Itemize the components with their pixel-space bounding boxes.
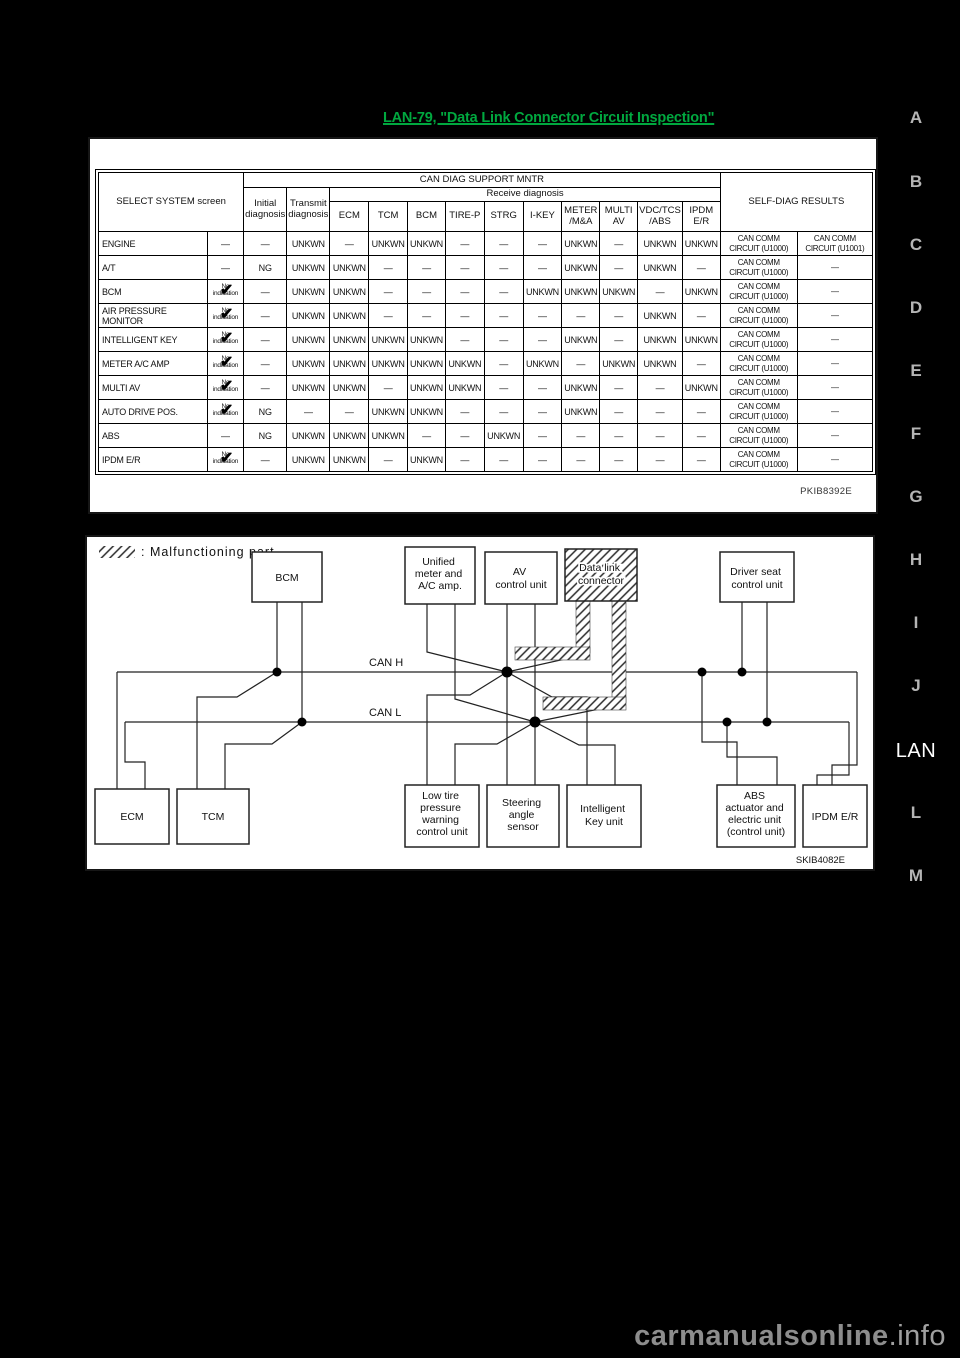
side-tab-c: C [894, 235, 938, 255]
cell-value: UNKWN [369, 400, 408, 424]
cell-value: — [682, 352, 720, 376]
table-row: AUTO DRIVE POS.Noindication✔NG——UNKWNUNK… [99, 400, 873, 424]
wire-lowtire-l [455, 722, 535, 785]
cell-value: — [523, 424, 562, 448]
cell-value: — [562, 352, 600, 376]
cell-self-diag-2: — [797, 400, 872, 424]
cell-self-diag-1: CAN COMM CIRCUIT (U1000) [720, 376, 797, 400]
cell-value: — [638, 280, 683, 304]
diag-table-frame: SELECT SYSTEM screen CAN DIAG SUPPORT MN… [95, 169, 876, 475]
wire-tcm-l [225, 722, 302, 789]
cell-value: — [638, 376, 683, 400]
header-initial: Initial diagnosis [244, 188, 287, 232]
cell-value: — [682, 448, 720, 472]
cell-value: — [484, 328, 523, 352]
cell-value: UNKWN [562, 400, 600, 424]
cell-value: UNKWN [523, 352, 562, 376]
cell-self-diag-1: CAN COMM CIRCUIT (U1000) [720, 280, 797, 304]
cell-value: — [484, 352, 523, 376]
watermark-suffix: .info [889, 1320, 946, 1352]
header-unit-ipdm: IPDM E/R [682, 202, 720, 232]
cell-value: — [244, 328, 287, 352]
side-tab-d: D [894, 298, 938, 318]
cell-system-name: METER A/C AMP [99, 352, 208, 376]
side-tab-i: I [894, 613, 938, 633]
wire-intkey-l [535, 722, 615, 785]
malfunctioning-legend: : Malfunctioning part [99, 545, 275, 559]
side-tab-j: J [894, 676, 938, 696]
cell-value: UNKWN [287, 304, 330, 328]
wire-dlc-h [507, 601, 583, 672]
cell-value: UNKWN [638, 304, 683, 328]
side-tab-b: B [894, 172, 938, 192]
cell-value: — [408, 304, 446, 328]
cell-value: UNKWN [287, 376, 330, 400]
cell-value: — [484, 280, 523, 304]
cell-value: — [523, 256, 562, 280]
cell-value: — [523, 400, 562, 424]
cell-value: UNKWN [408, 352, 446, 376]
junction-dot [723, 718, 732, 727]
box-dlc-label: Data link connector [578, 562, 625, 587]
box-tcm-label: TCM [202, 811, 225, 823]
cell-value: — [330, 232, 369, 256]
side-tab-f: F [894, 424, 938, 444]
cell-value: UNKWN [638, 328, 683, 352]
hatch-run-dlc-l-horiz [543, 697, 626, 710]
cell-value: — [600, 328, 638, 352]
cell-system-name: INTELLIGENT KEY [99, 328, 208, 352]
cell-value: UNKWN [682, 376, 720, 400]
junction-dot [763, 718, 772, 727]
cell-self-diag-1: CAN COMM CIRCUIT (U1000) [720, 424, 797, 448]
cell-value: UNKWN [369, 424, 408, 448]
cell-value: — [682, 424, 720, 448]
cell-value: UNKWN [330, 304, 369, 328]
manual-page: { "page": { "link_text": "LAN-79, \"Data… [0, 0, 960, 1358]
cell-value: — [600, 232, 638, 256]
side-tab-a: A [894, 108, 938, 128]
cell-value: — [244, 280, 287, 304]
header-unit-tcm: TCM [369, 202, 408, 232]
cell-value: — [445, 448, 484, 472]
diagram-figure-code: SKIB4082E [796, 855, 845, 866]
header-unit-bcm: BCM [408, 202, 446, 232]
cell-value: UNKWN [330, 256, 369, 280]
cell-value: — [523, 304, 562, 328]
cell-value: — [682, 304, 720, 328]
cell-value: — [369, 256, 408, 280]
cell-value: — [600, 376, 638, 400]
cell-value: — [484, 376, 523, 400]
cell-value: UNKWN [287, 232, 330, 256]
cell-value: UNKWN [408, 328, 446, 352]
cell-value: — [484, 400, 523, 424]
table-row: A/T—NGUNKWNUNKWN—————UNKWN—UNKWN—CAN COM… [99, 256, 873, 280]
cell-self-diag-2: — [797, 352, 872, 376]
header-unit-strg: STRG [484, 202, 523, 232]
junction-dot [298, 718, 307, 727]
wire-ipdm-h [832, 672, 857, 785]
cell-value: — [445, 256, 484, 280]
can-wiring-diagram-panel: : Malfunctioning part CAN H CAN L [85, 535, 875, 871]
cell-value: UNKWN [445, 376, 484, 400]
cell-value: — [562, 448, 600, 472]
cell-system-name: BCM [99, 280, 208, 304]
box-av-control [485, 552, 557, 604]
can-l-label: CAN L [369, 707, 401, 719]
cell-system-name: AIR PRESSURE MONITOR [99, 304, 208, 328]
cell-indication: Noindication✔ [207, 304, 243, 328]
cell-value: — [369, 376, 408, 400]
cell-value: — [445, 280, 484, 304]
cell-value: — [369, 304, 408, 328]
cell-value: — [523, 232, 562, 256]
cell-value: UNKWN [287, 280, 330, 304]
diag-table-body: ENGINE——UNKWN—UNKWNUNKWN———UNKWN—UNKWNUN… [99, 232, 873, 472]
cell-value: UNKWN [287, 424, 330, 448]
cell-value: UNKWN [562, 256, 600, 280]
header-select-system: SELECT SYSTEM screen [99, 173, 244, 232]
check-icon: ✔ [220, 352, 233, 372]
cell-value: UNKWN [369, 232, 408, 256]
cell-value: — [408, 280, 446, 304]
cell-value: UNKWN [408, 400, 446, 424]
cell-value: — [369, 280, 408, 304]
cell-value: UNKWN [330, 328, 369, 352]
cell-system-name: ENGINE [99, 232, 208, 256]
box-driverseat-label: Driver seat control unit [730, 566, 784, 591]
table-row: METER A/C AMPNoindication✔—UNKWNUNKWNUNK… [99, 352, 873, 376]
cell-value: UNKWN [562, 328, 600, 352]
cell-value: — [523, 448, 562, 472]
cell-value: UNKWN [682, 328, 720, 352]
junction-dot [698, 668, 707, 677]
cell-value: UNKWN [523, 280, 562, 304]
cell-value: — [600, 304, 638, 328]
no-indication-cell: Noindication✔ [209, 353, 242, 375]
cell-indication: — [207, 256, 243, 280]
side-tab-g: G [894, 487, 938, 507]
junction-dot [273, 668, 282, 677]
cell-value: UNKWN [287, 256, 330, 280]
cell-value: UNKWN [562, 376, 600, 400]
cell-value: UNKWN [408, 376, 446, 400]
table-figure-code: PKIB8392E [800, 486, 852, 497]
header-unit-ecm: ECM [330, 202, 369, 232]
check-icon: ✔ [220, 376, 233, 396]
no-indication-cell: Noindication✔ [209, 401, 242, 423]
cell-value: — [484, 256, 523, 280]
cell-value: UNKWN [562, 280, 600, 304]
cell-self-diag-2: — [797, 256, 872, 280]
cell-value: — [484, 448, 523, 472]
cell-value: UNKWN [369, 328, 408, 352]
box-ipdm-label: IPDM E/R [812, 811, 859, 823]
table-row: AIR PRESSURE MONITORNoindication✔—UNKWNU… [99, 304, 873, 328]
cell-value: — [408, 256, 446, 280]
cell-self-diag-2: — [797, 424, 872, 448]
no-indication-cell: Noindication✔ [209, 377, 242, 399]
cell-value: UNKWN [600, 352, 638, 376]
cell-value: UNKWN [445, 352, 484, 376]
diagnostic-table-panel: SELECT SYSTEM screen CAN DIAG SUPPORT MN… [88, 137, 878, 514]
cell-self-diag-1: CAN COMM CIRCUIT (U1000) [720, 448, 797, 472]
cell-value: UNKWN [638, 232, 683, 256]
cell-value: NG [244, 424, 287, 448]
table-row: MULTI AVNoindication✔—UNKWNUNKWN—UNKWNUN… [99, 376, 873, 400]
cell-value: — [600, 424, 638, 448]
wire-ipdm-l [817, 722, 849, 785]
cell-indication: Noindication✔ [207, 448, 243, 472]
cell-self-diag-2: — [797, 328, 872, 352]
side-tab-h: H [894, 550, 938, 570]
data-link-connector-link[interactable]: LAN-79, "Data Link Connector Circuit Ins… [383, 110, 783, 126]
header-unit-meter: METER /M&A [562, 202, 600, 232]
no-indication-cell: Noindication✔ [209, 305, 242, 327]
cell-value: UNKWN [287, 328, 330, 352]
cell-value: — [244, 232, 287, 256]
cell-self-diag-2: — [797, 376, 872, 400]
cell-value: — [244, 448, 287, 472]
junction-dot [502, 667, 513, 678]
side-tab-l: L [894, 803, 938, 823]
no-indication-cell: Noindication✔ [209, 281, 242, 303]
cell-value: — [682, 400, 720, 424]
cell-self-diag-1: CAN COMM CIRCUIT (U1000) [720, 256, 797, 280]
cell-value: — [638, 448, 683, 472]
cell-system-name: A/T [99, 256, 208, 280]
wire-abs-h [702, 672, 737, 785]
cell-self-diag-1: CAN COMM CIRCUIT (U1000) [720, 352, 797, 376]
wire-unified-h [427, 604, 507, 672]
cell-value: UNKWN [484, 424, 523, 448]
cell-value: — [682, 256, 720, 280]
hatch-run-dlc-h-horiz [515, 647, 590, 660]
cell-value: UNKWN [682, 232, 720, 256]
table-row: BCMNoindication✔—UNKWNUNKWN————UNKWNUNKW… [99, 280, 873, 304]
can-diag-table: SELECT SYSTEM screen CAN DIAG SUPPORT MN… [98, 172, 873, 472]
can-wiring-diagram: : Malfunctioning part CAN H CAN L [87, 537, 873, 869]
cell-value: — [445, 328, 484, 352]
no-indication-cell: Noindication✔ [209, 329, 242, 351]
cell-value: — [445, 424, 484, 448]
cell-value: UNKWN [330, 448, 369, 472]
wire-lowtire-h [427, 672, 507, 785]
cell-value: — [523, 328, 562, 352]
wire-tcm-h [197, 672, 277, 789]
cell-value: — [562, 304, 600, 328]
watermark-main: carmanualsonline [634, 1320, 889, 1352]
cell-value: UNKWN [369, 352, 408, 376]
cell-value: — [523, 376, 562, 400]
cell-value: UNKWN [638, 352, 683, 376]
cell-self-diag-1: CAN COMM CIRCUIT (U1000) [720, 232, 797, 256]
table-row: ENGINE——UNKWN—UNKWNUNKWN———UNKWN—UNKWNUN… [99, 232, 873, 256]
check-icon: ✔ [220, 400, 233, 420]
box-bcm-label: BCM [275, 572, 298, 584]
side-tab-e: E [894, 361, 938, 381]
cell-value: — [484, 304, 523, 328]
check-icon: ✔ [220, 448, 233, 468]
cell-self-diag-1: CAN COMM CIRCUIT (U1000) [720, 400, 797, 424]
header-receive: Receive diagnosis [330, 188, 720, 202]
check-icon: ✔ [220, 304, 233, 324]
cell-value: UNKWN [330, 352, 369, 376]
cell-value: UNKWN [638, 256, 683, 280]
cell-self-diag-2: — [797, 448, 872, 472]
wire-unified-l [455, 604, 535, 722]
wire-ecm-l [125, 722, 145, 789]
table-row: ABS—NGUNKWNUNKWNUNKWN——UNKWN—————CAN COM… [99, 424, 873, 448]
cell-self-diag-2: — [797, 304, 872, 328]
cell-indication: — [207, 232, 243, 256]
header-unit-tirep: TIRE-P [445, 202, 484, 232]
junction-dot [530, 717, 541, 728]
header-transmit: Transmit diagnosis [287, 188, 330, 232]
cell-value: UNKWN [408, 448, 446, 472]
no-indication-cell: Noindication✔ [209, 449, 242, 471]
header-unit-multiav: MULTI AV [600, 202, 638, 232]
header-can-diag: CAN DIAG SUPPORT MNTR [244, 173, 721, 188]
header-self-diag: SELF-DIAG RESULTS [720, 173, 872, 232]
cell-value: — [287, 400, 330, 424]
cell-self-diag-2: CAN COMM CIRCUIT (U1001) [797, 232, 872, 256]
cell-value: — [244, 352, 287, 376]
cell-value: — [445, 304, 484, 328]
cell-value: — [330, 400, 369, 424]
cell-indication: Noindication✔ [207, 352, 243, 376]
header-unit-ikey: I-KEY [523, 202, 562, 232]
cell-indication: Noindication✔ [207, 280, 243, 304]
side-tab-m: M [894, 866, 938, 886]
cell-indication: Noindication✔ [207, 376, 243, 400]
cell-value: — [369, 448, 408, 472]
cell-value: — [244, 376, 287, 400]
cell-value: — [244, 304, 287, 328]
cell-value: UNKWN [330, 376, 369, 400]
hatch-swatch-icon [99, 546, 135, 558]
cell-value: — [408, 424, 446, 448]
check-icon: ✔ [220, 280, 233, 300]
cell-value: UNKWN [287, 448, 330, 472]
cell-value: UNKWN [682, 280, 720, 304]
cell-value: UNKWN [287, 352, 330, 376]
cell-value: — [638, 424, 683, 448]
cell-value: UNKWN [408, 232, 446, 256]
box-lowtire-label: Low tire pressure warning control unit [416, 790, 467, 838]
cell-value: — [600, 256, 638, 280]
header-unit-vdc: VDC/TCS /ABS [638, 202, 683, 232]
cell-system-name: ABS [99, 424, 208, 448]
cell-indication: Noindication✔ [207, 328, 243, 352]
can-h-label: CAN H [369, 657, 403, 669]
cell-system-name: MULTI AV [99, 376, 208, 400]
cell-self-diag-1: CAN COMM CIRCUIT (U1000) [720, 328, 797, 352]
box-unified-label: Unified meter and A/C amp. [415, 556, 465, 592]
cell-value: UNKWN [562, 232, 600, 256]
box-intkey-label: Intelligent Key unit [580, 803, 628, 828]
wiring [117, 601, 857, 789]
cell-system-name: IPDM E/R [99, 448, 208, 472]
cell-value: UNKWN [330, 280, 369, 304]
cell-value: — [600, 448, 638, 472]
cell-value: — [562, 424, 600, 448]
wire-abs-l [727, 722, 777, 785]
watermark: carmanualsonline.info [634, 1320, 946, 1353]
cell-self-diag-2: — [797, 280, 872, 304]
hatch-run-dlc-l-vert [612, 601, 626, 703]
junction-dot [738, 668, 747, 677]
cell-value: — [484, 232, 523, 256]
cell-value: — [600, 400, 638, 424]
check-icon: ✔ [220, 328, 233, 348]
table-row: IPDM E/RNoindication✔—UNKWNUNKWN—UNKWN——… [99, 448, 873, 472]
cell-value: — [445, 400, 484, 424]
cell-value: UNKWN [330, 424, 369, 448]
cell-indication: Noindication✔ [207, 400, 243, 424]
malfunction-hatch-runs [515, 601, 626, 710]
cell-indication: — [207, 424, 243, 448]
cell-value: NG [244, 400, 287, 424]
cell-value: — [445, 232, 484, 256]
cell-system-name: AUTO DRIVE POS. [99, 400, 208, 424]
side-tab-lan: LAN [894, 740, 938, 763]
table-row: INTELLIGENT KEYNoindication✔—UNKWNUNKWNU… [99, 328, 873, 352]
hatch-run-dlc-h-vert [576, 601, 590, 653]
cell-value: NG [244, 256, 287, 280]
box-ecm-label: ECM [120, 811, 143, 823]
cell-value: UNKWN [600, 280, 638, 304]
cell-value: — [638, 400, 683, 424]
cell-self-diag-1: CAN COMM CIRCUIT (U1000) [720, 304, 797, 328]
